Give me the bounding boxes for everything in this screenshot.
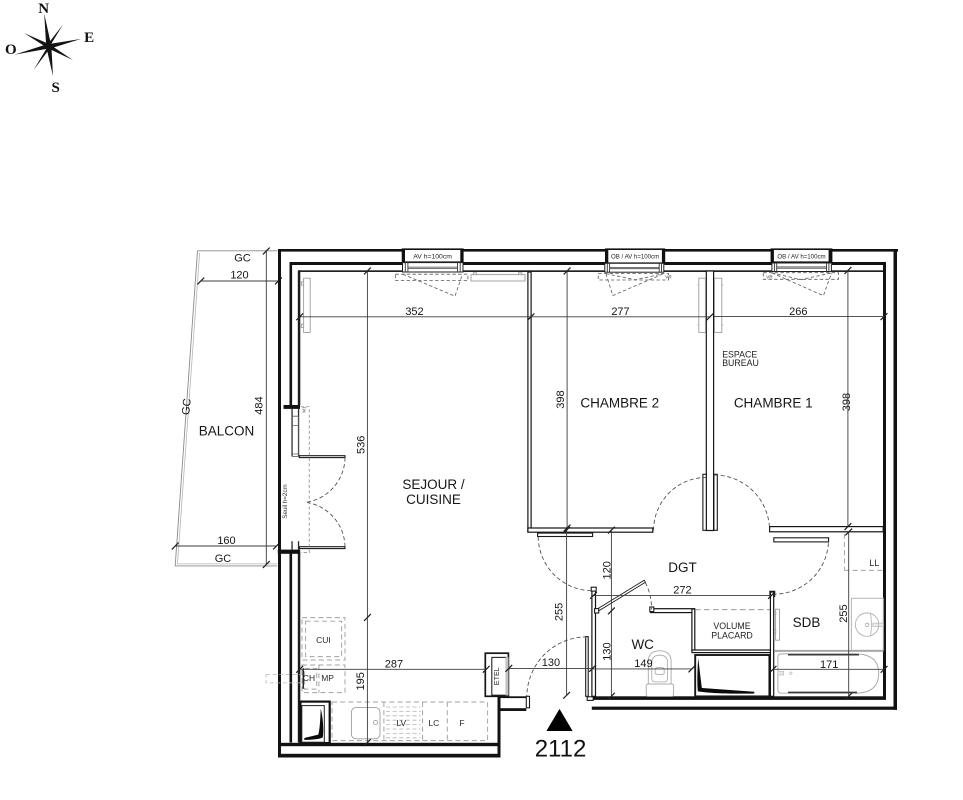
svg-text:LV: LV: [396, 718, 406, 728]
svg-text:VR: VR: [766, 274, 773, 279]
svg-text:195: 195: [355, 672, 367, 690]
svg-text:GC: GC: [215, 553, 232, 565]
svg-text:SDB: SDB: [793, 615, 821, 630]
svg-text:120: 120: [601, 561, 613, 579]
svg-text:ETEL: ETEL: [492, 667, 501, 685]
svg-text:OB / AV h=100cm: OB / AV h=100cm: [777, 253, 825, 260]
svg-text:130: 130: [542, 657, 560, 669]
svg-text:DGT: DGT: [668, 560, 697, 575]
svg-text:266: 266: [789, 306, 807, 318]
svg-text:VR: VR: [665, 275, 672, 280]
svg-text:149: 149: [634, 658, 652, 670]
svg-text:SEJOUR /: SEJOUR /: [402, 477, 465, 492]
svg-text:CHAMBRE 1: CHAMBRE 1: [734, 395, 813, 410]
svg-text:S: S: [52, 80, 60, 96]
svg-text:277: 277: [611, 306, 629, 318]
svg-text:CUISINE: CUISINE: [406, 492, 461, 507]
svg-text:2112: 2112: [535, 736, 587, 763]
svg-text:255: 255: [554, 603, 566, 621]
svg-text:536: 536: [356, 436, 368, 454]
svg-text:M1: M1: [302, 406, 307, 413]
svg-text:BUREAU: BUREAU: [722, 358, 759, 368]
svg-text:OB / AV h=100cm: OB / AV h=100cm: [611, 254, 659, 261]
svg-text:398: 398: [555, 390, 567, 408]
svg-text:N: N: [38, 1, 49, 17]
svg-text:LC: LC: [428, 718, 439, 728]
svg-text:272: 272: [673, 585, 691, 597]
svg-text:GC: GC: [180, 398, 194, 416]
svg-text:CH: CH: [303, 673, 315, 683]
svg-text:171: 171: [820, 659, 838, 671]
svg-text:O: O: [5, 42, 17, 58]
svg-text:255: 255: [838, 604, 850, 622]
svg-text:GC: GC: [234, 252, 251, 264]
svg-text:398: 398: [841, 393, 853, 411]
svg-text:WC: WC: [631, 637, 654, 652]
svg-text:484: 484: [254, 396, 266, 414]
svg-text:LL: LL: [869, 558, 879, 568]
svg-text:PLACARD: PLACARD: [711, 630, 753, 640]
svg-text:Seuil h=2cm: Seuil h=2cm: [282, 484, 289, 518]
svg-text:352: 352: [405, 306, 423, 318]
svg-text:160: 160: [217, 535, 235, 547]
svg-text:287: 287: [385, 658, 403, 670]
svg-text:CUI: CUI: [316, 635, 331, 645]
svg-text:MP: MP: [321, 673, 334, 683]
svg-text:120: 120: [230, 269, 248, 281]
svg-text:130: 130: [601, 642, 613, 660]
svg-text:CHAMBRE 2: CHAMBRE 2: [580, 395, 659, 410]
svg-text:BALCON: BALCON: [199, 423, 255, 438]
svg-text:F: F: [459, 718, 464, 728]
svg-text:E: E: [84, 30, 94, 46]
svg-text:AV h=100cm: AV h=100cm: [413, 253, 452, 260]
